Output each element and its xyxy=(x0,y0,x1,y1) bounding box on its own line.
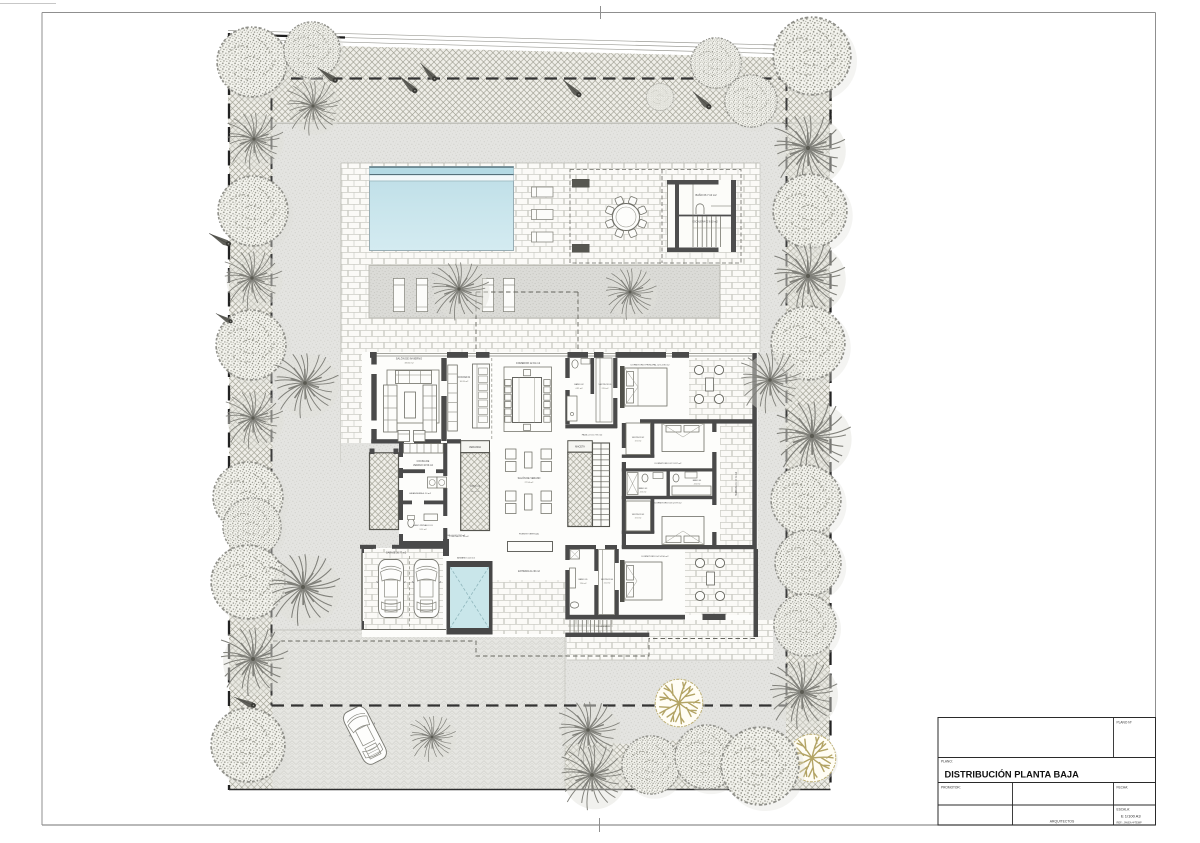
svg-text:4.35 m2: 4.35 m2 xyxy=(640,492,647,494)
svg-text:18.20 m2: 18.20 m2 xyxy=(470,491,480,493)
svg-text:ARMARIO 4.20 m2: ARMARIO 4.20 m2 xyxy=(457,557,476,560)
svg-text:COMEDOR 12.91 m2: COMEDOR 12.91 m2 xyxy=(516,362,541,365)
svg-text:COCINA 01: COCINA 01 xyxy=(458,376,471,379)
svg-text:TERRAZA 01 17.71 m2: TERRAZA 01 17.71 m2 xyxy=(735,471,738,496)
svg-text:MACETA: MACETA xyxy=(575,446,585,449)
svg-text:DORMITORIO 04 14.50 m2: DORMITORIO 04 14.50 m2 xyxy=(642,556,670,558)
svg-text:PASILLO 01 7.91 m2: PASILLO 01 7.91 m2 xyxy=(582,434,603,437)
svg-text:BAÑO 04: BAÑO 04 xyxy=(693,479,702,482)
svg-text:10.20 m2: 10.20 m2 xyxy=(460,381,470,383)
svg-text:ESCALERA 02 8.10 m2: ESCALERA 02 8.10 m2 xyxy=(692,221,718,224)
svg-text:COCINA DE: COCINA DE xyxy=(417,460,430,463)
svg-text:DORMITORIO PRINCIPAL 02 14.9: DORMITORIO PRINCIPAL 02 14.95 m2 xyxy=(631,364,671,367)
svg-text:BAÑO 03: BAÑO 03 xyxy=(639,487,648,490)
svg-text:FECHA:: FECHA: xyxy=(1117,786,1129,790)
svg-text:VERANDA: VERANDA xyxy=(469,446,481,449)
svg-text:PUENTE VERTICAL: PUENTE VERTICAL xyxy=(519,533,540,536)
svg-text:ASEO PRIVADO 01: ASEO PRIVADO 01 xyxy=(413,524,433,527)
svg-text:PLANO Nº: PLANO Nº xyxy=(1117,721,1133,725)
svg-text:VESTIDOR 04: VESTIDOR 04 xyxy=(601,579,613,581)
svg-text:PORCHE 02 19 m2: PORCHE 02 19 m2 xyxy=(449,536,469,538)
svg-text:ARQUITECTOS: ARQUITECTOS xyxy=(1050,820,1075,824)
svg-text:BAÑO 05: BAÑO 05 xyxy=(579,578,589,581)
svg-text:PATIO 02: PATIO 02 xyxy=(470,485,481,488)
svg-text:3.70 m2: 3.70 m2 xyxy=(635,441,642,443)
svg-text:ESCALERA 03: ESCALERA 03 xyxy=(596,625,610,628)
svg-text:REF.: JAVEA 4ªTEMP: REF.: JAVEA 4ªTEMP xyxy=(1117,821,1143,825)
svg-text:DORMITORIO 02 11.97 m2: DORMITORIO 02 11.97 m2 xyxy=(655,463,683,465)
svg-text:4.35 m2: 4.35 m2 xyxy=(575,388,583,390)
svg-text:DISTRIBUCIÓN PLANTA BAJA: DISTRIBUCIÓN PLANTA BAJA xyxy=(945,769,1080,780)
svg-text:DORMITORIO 03 12.97 m2: DORMITORIO 03 12.97 m2 xyxy=(655,503,683,505)
svg-text:7.94 m2: 7.94 m2 xyxy=(580,583,587,585)
svg-text:SALÓN DE VERANO: SALÓN DE VERANO xyxy=(518,477,541,480)
svg-text:VESTIDOR 01: VESTIDOR 01 xyxy=(598,384,612,386)
svg-text:3.10 m2: 3.10 m2 xyxy=(419,529,427,531)
svg-text:ENTRADA 11.30 m2: ENTRADA 11.30 m2 xyxy=(518,570,540,573)
svg-text:LAVANDERÍA 4.10 m2: LAVANDERÍA 4.10 m2 xyxy=(409,492,432,495)
svg-text:PLANO:: PLANO: xyxy=(941,760,953,764)
svg-text:2.90 m2: 2.90 m2 xyxy=(602,388,609,390)
svg-text:3.70 m2: 3.70 m2 xyxy=(635,518,642,520)
svg-text:PROMOTOR:: PROMOTOR: xyxy=(941,786,961,790)
svg-text:VESTIDOR 03: VESTIDOR 03 xyxy=(632,514,644,516)
svg-text:GARAJE 36.77 m2: GARAJE 36.77 m2 xyxy=(386,552,407,555)
svg-text:VERANO 10.50 m2: VERANO 10.50 m2 xyxy=(413,464,434,467)
svg-text:4.30 m2: 4.30 m2 xyxy=(694,484,701,486)
svg-text:33.60 m2: 33.60 m2 xyxy=(404,363,414,365)
svg-text:BAÑO 02: BAÑO 02 xyxy=(574,383,584,386)
svg-text:27.56 m2: 27.56 m2 xyxy=(525,482,535,484)
svg-text:E 1/100 A3: E 1/100 A3 xyxy=(1121,814,1141,819)
svg-text:2.10 m2: 2.10 m2 xyxy=(604,583,611,585)
svg-text:VESTIDOR 02: VESTIDOR 02 xyxy=(632,437,644,439)
svg-text:ESCALA:: ESCALA: xyxy=(1117,808,1131,812)
